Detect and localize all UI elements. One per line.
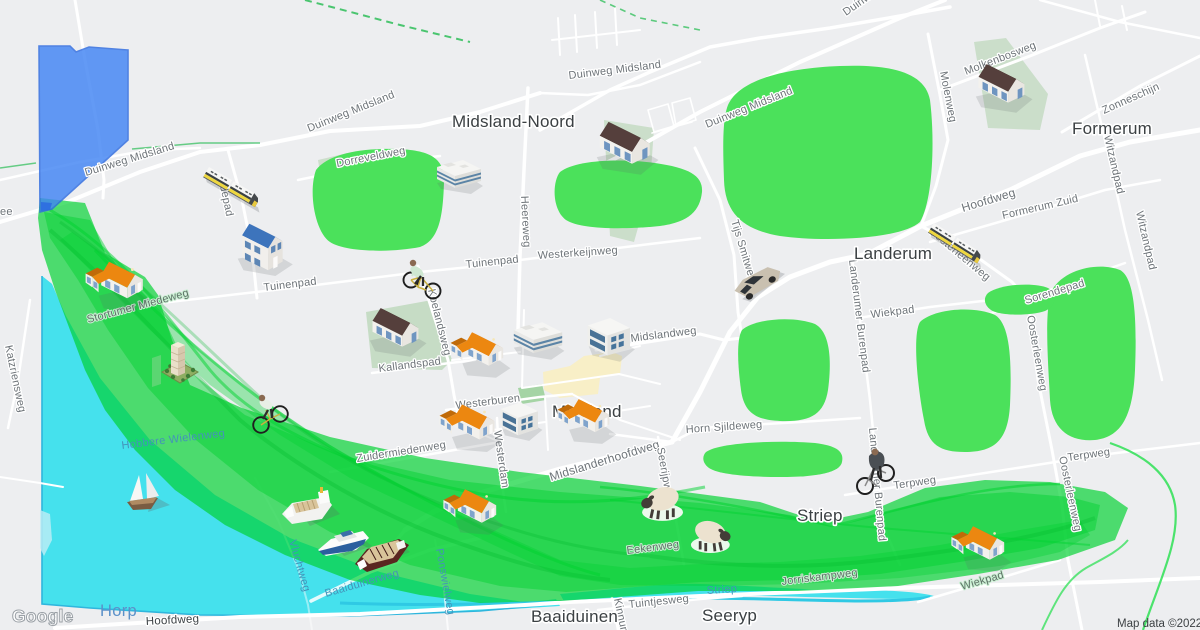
svg-text:Seeryp: Seeryp — [702, 606, 757, 625]
svg-text:Baaiduinen: Baaiduinen — [531, 607, 618, 626]
svg-text:Striep: Striep — [797, 506, 843, 525]
svg-text:Google: Google — [12, 606, 74, 626]
svg-text:Formerum: Formerum — [1072, 119, 1152, 138]
svg-text:ee: ee — [0, 206, 13, 218]
svg-text:Horp: Horp — [100, 602, 137, 620]
svg-text:Landerum: Landerum — [854, 244, 932, 263]
svg-text:Map data ©2022: Map data ©2022 — [1117, 618, 1200, 630]
svg-text:Striep: Striep — [706, 583, 737, 597]
svg-text:Midsland-Noord: Midsland-Noord — [452, 112, 575, 131]
